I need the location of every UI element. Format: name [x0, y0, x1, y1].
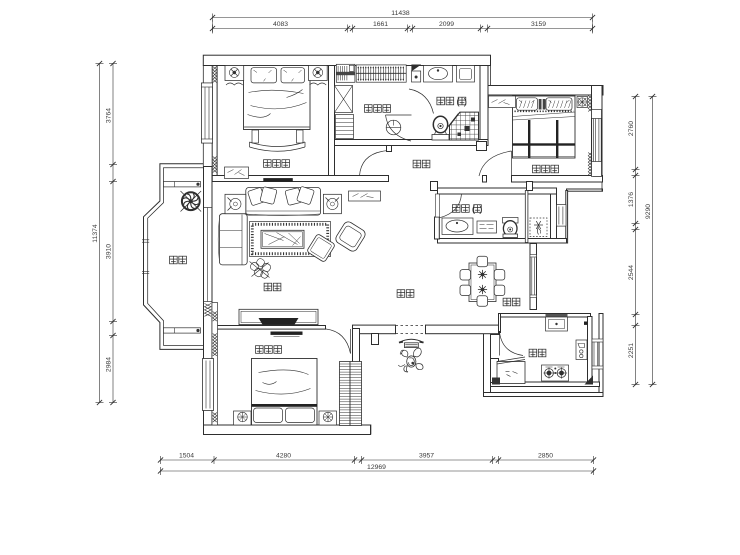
svg-text:1661: 1661	[373, 21, 388, 28]
svg-text:1504: 1504	[179, 453, 194, 460]
svg-text:1376: 1376	[628, 192, 635, 207]
svg-text:3957: 3957	[419, 453, 434, 460]
svg-text:2850: 2850	[538, 453, 553, 460]
svg-text:3159: 3159	[531, 21, 546, 28]
svg-text:2760: 2760	[628, 121, 635, 136]
svg-text:3764: 3764	[106, 108, 113, 123]
svg-text:12969: 12969	[367, 464, 386, 471]
svg-text:3910: 3910	[106, 244, 113, 259]
svg-text:): )	[464, 96, 467, 107]
svg-text:11374: 11374	[92, 224, 99, 243]
svg-text:9290: 9290	[645, 204, 652, 219]
svg-text:4083: 4083	[273, 21, 288, 28]
svg-text:2099: 2099	[439, 21, 454, 28]
svg-text:): )	[479, 204, 482, 215]
svg-text:2984: 2984	[106, 357, 113, 372]
svg-text:4280: 4280	[276, 453, 291, 460]
svg-text:2251: 2251	[628, 343, 635, 358]
svg-text:11438: 11438	[391, 10, 410, 17]
svg-text:2544: 2544	[628, 265, 635, 280]
